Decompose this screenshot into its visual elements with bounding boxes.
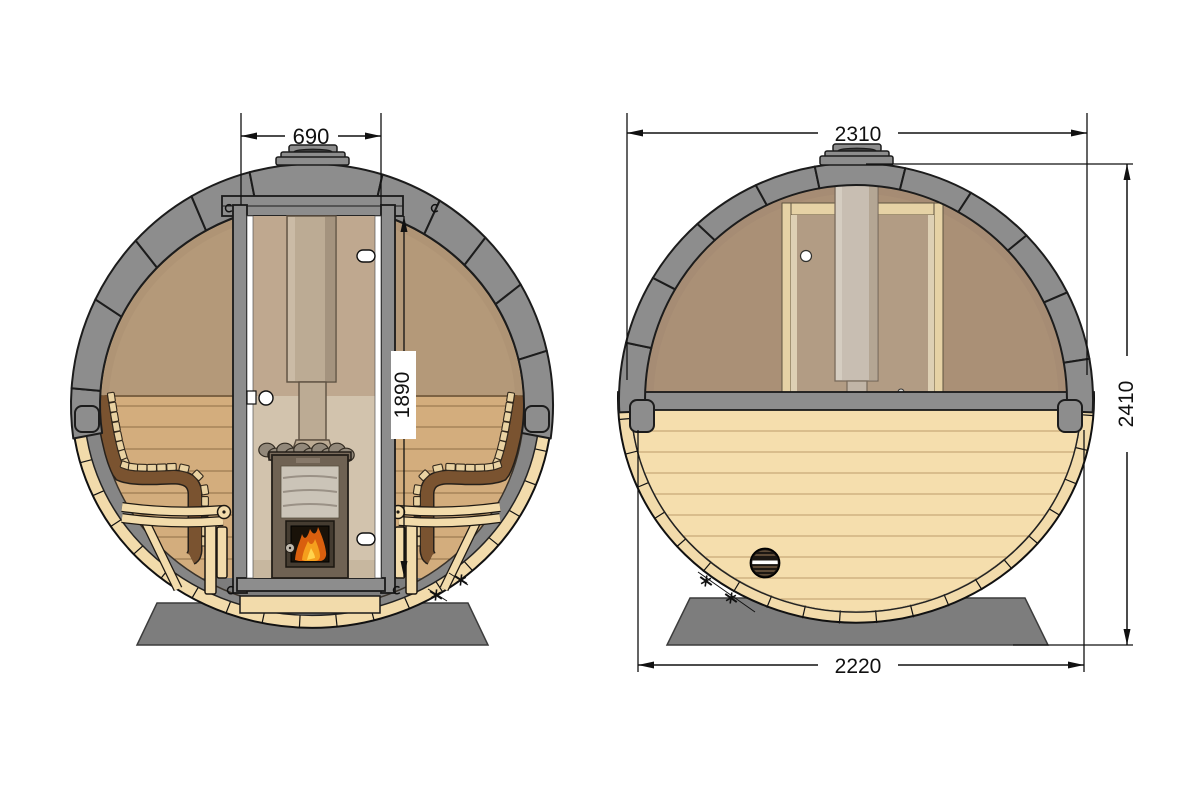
svg-text:690: 690 [293,124,330,149]
svg-text:1890: 1890 [391,372,414,419]
svg-text:2410: 2410 [1115,381,1138,428]
svg-text:2220: 2220 [835,655,882,678]
svg-text:2310: 2310 [835,123,882,146]
